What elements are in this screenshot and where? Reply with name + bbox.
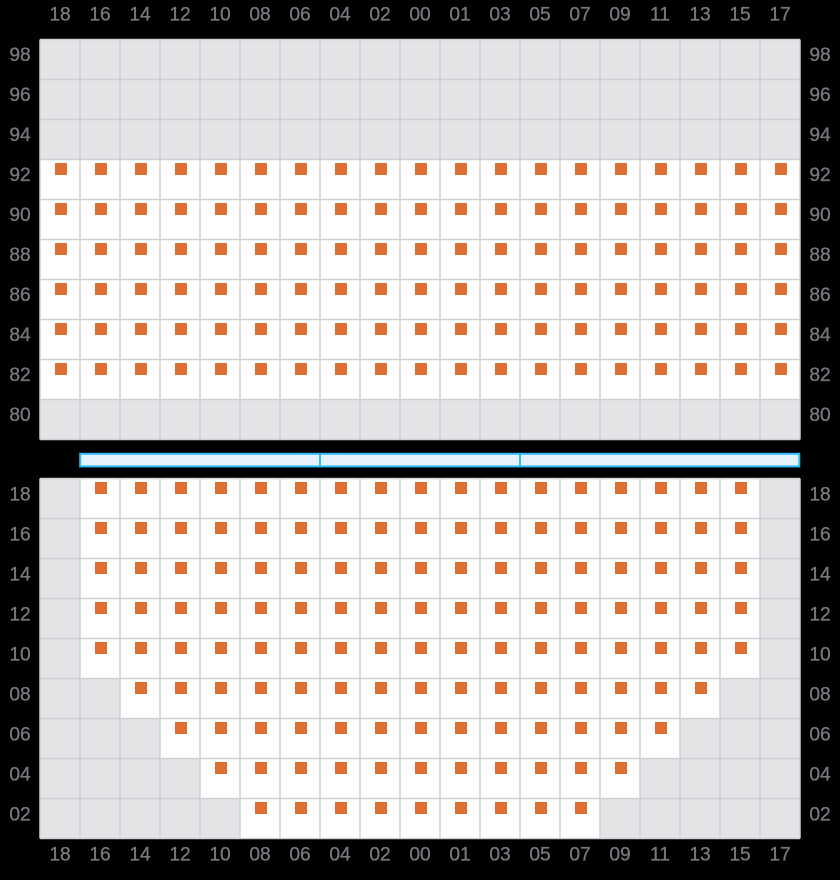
svg-text:06: 06 [289, 5, 310, 26]
svg-text:17: 17 [769, 845, 790, 866]
svg-text:16: 16 [89, 845, 110, 866]
svg-text:12: 12 [169, 5, 190, 26]
svg-text:94: 94 [809, 125, 831, 146]
svg-text:80: 80 [9, 405, 30, 426]
svg-text:92: 92 [809, 165, 830, 186]
svg-text:10: 10 [209, 845, 230, 866]
svg-text:10: 10 [209, 5, 230, 26]
svg-text:12: 12 [169, 845, 190, 866]
svg-text:04: 04 [809, 765, 831, 786]
svg-text:09: 09 [609, 5, 630, 26]
svg-text:08: 08 [249, 845, 270, 866]
svg-text:02: 02 [9, 805, 30, 826]
svg-text:11: 11 [650, 845, 670, 866]
svg-text:00: 00 [409, 845, 430, 866]
svg-text:96: 96 [809, 85, 830, 106]
svg-text:90: 90 [9, 205, 30, 226]
svg-text:13: 13 [689, 845, 710, 866]
svg-text:18: 18 [49, 845, 70, 866]
svg-text:12: 12 [809, 605, 830, 626]
svg-text:16: 16 [89, 5, 110, 26]
svg-text:17: 17 [769, 5, 790, 26]
svg-text:04: 04 [9, 765, 31, 786]
svg-text:15: 15 [729, 5, 750, 26]
svg-text:14: 14 [809, 565, 831, 586]
svg-text:15: 15 [729, 845, 750, 866]
svg-text:01: 01 [449, 5, 470, 26]
svg-text:14: 14 [129, 5, 151, 26]
svg-text:02: 02 [369, 845, 390, 866]
svg-text:98: 98 [809, 45, 830, 66]
svg-text:92: 92 [9, 165, 30, 186]
svg-text:06: 06 [9, 725, 30, 746]
svg-text:16: 16 [9, 525, 30, 546]
svg-text:80: 80 [809, 405, 830, 426]
svg-text:90: 90 [809, 205, 830, 226]
svg-text:08: 08 [809, 685, 830, 706]
svg-text:82: 82 [9, 365, 30, 386]
svg-text:04: 04 [329, 845, 351, 866]
svg-text:05: 05 [529, 5, 550, 26]
svg-text:07: 07 [569, 845, 590, 866]
svg-text:11: 11 [650, 5, 670, 26]
svg-text:01: 01 [449, 845, 470, 866]
svg-text:16: 16 [809, 525, 830, 546]
svg-text:06: 06 [289, 845, 310, 866]
svg-text:14: 14 [129, 845, 151, 866]
svg-text:96: 96 [9, 85, 30, 106]
svg-text:03: 03 [489, 5, 510, 26]
svg-text:88: 88 [809, 245, 830, 266]
svg-text:10: 10 [9, 645, 30, 666]
svg-text:02: 02 [369, 5, 390, 26]
svg-text:84: 84 [809, 325, 831, 346]
svg-text:88: 88 [9, 245, 30, 266]
svg-text:12: 12 [9, 605, 30, 626]
svg-text:98: 98 [9, 45, 30, 66]
svg-text:86: 86 [9, 285, 30, 306]
svg-text:02: 02 [809, 805, 830, 826]
svg-text:04: 04 [329, 5, 351, 26]
svg-text:07: 07 [569, 5, 590, 26]
svg-text:00: 00 [409, 5, 430, 26]
svg-text:86: 86 [809, 285, 830, 306]
svg-text:10: 10 [809, 645, 830, 666]
svg-text:03: 03 [489, 845, 510, 866]
svg-text:13: 13 [689, 5, 710, 26]
svg-text:18: 18 [9, 485, 30, 506]
svg-text:05: 05 [529, 845, 550, 866]
svg-text:06: 06 [809, 725, 830, 746]
svg-text:18: 18 [49, 5, 70, 26]
svg-text:09: 09 [609, 845, 630, 866]
svg-text:82: 82 [809, 365, 830, 386]
svg-text:08: 08 [249, 5, 270, 26]
svg-text:08: 08 [9, 685, 30, 706]
svg-text:94: 94 [9, 125, 31, 146]
svg-text:84: 84 [9, 325, 31, 346]
svg-text:18: 18 [809, 485, 830, 506]
svg-text:14: 14 [9, 565, 31, 586]
